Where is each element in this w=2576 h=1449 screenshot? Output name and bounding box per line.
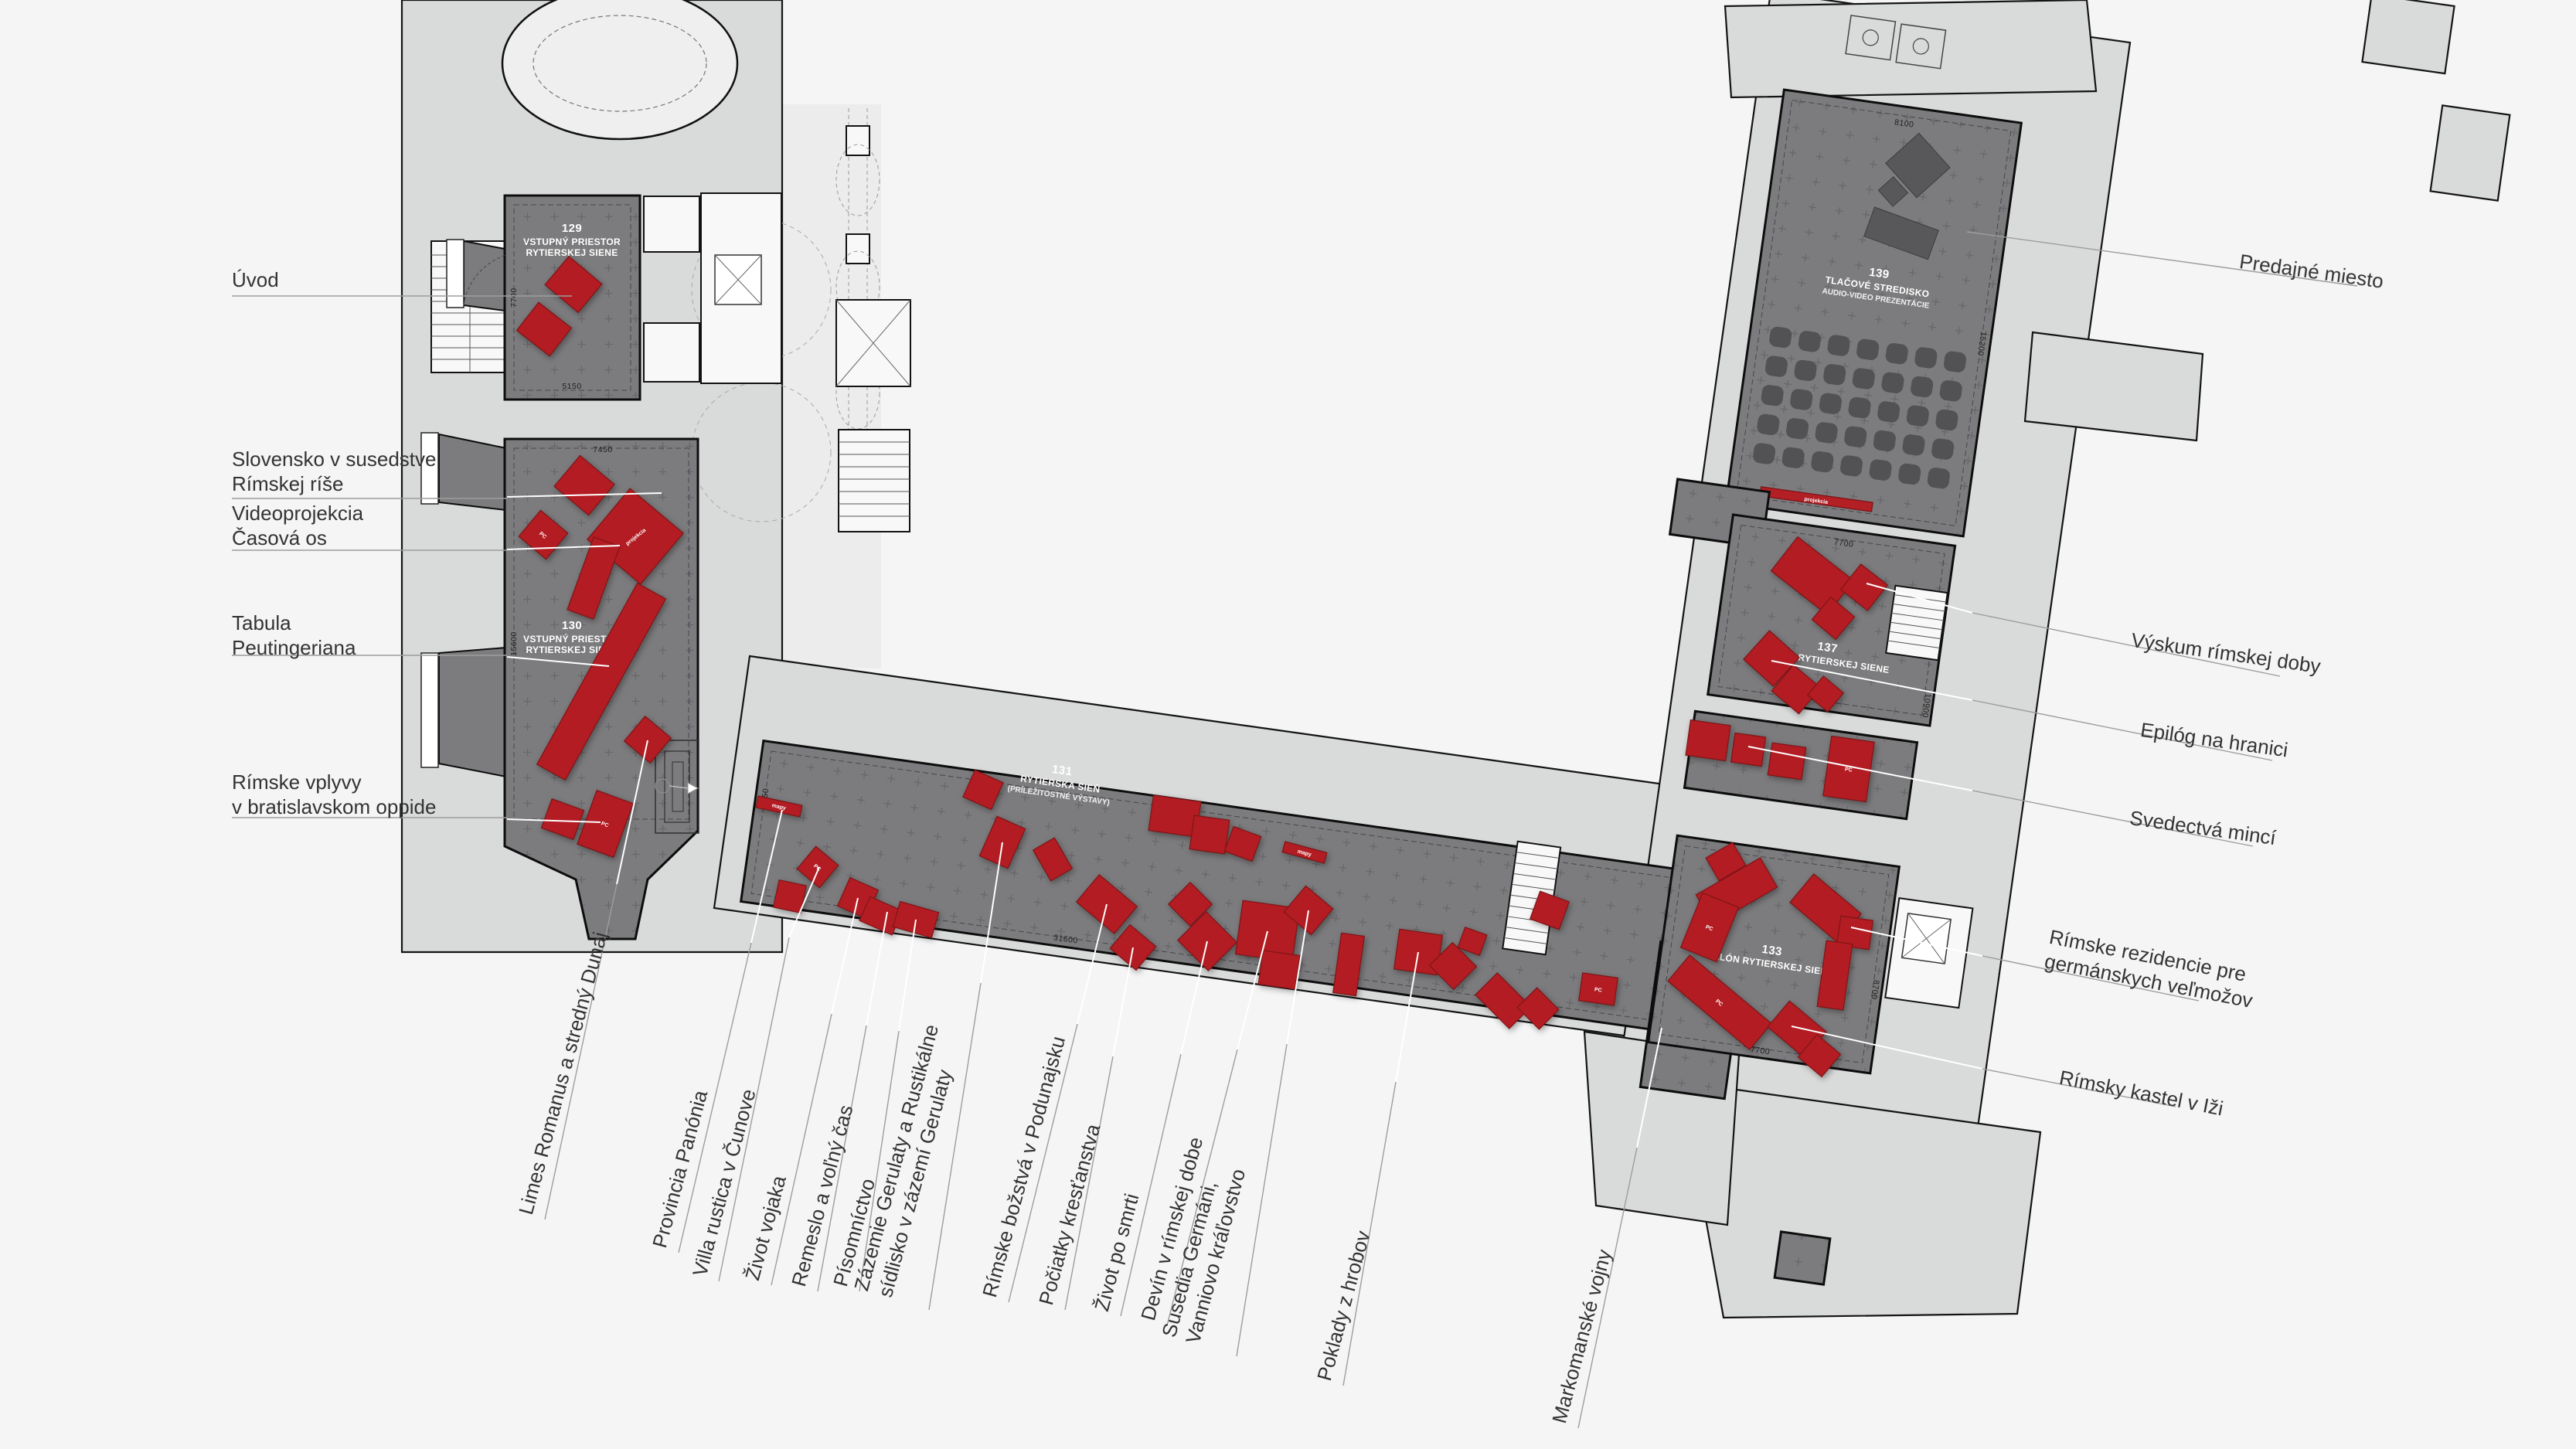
label-rimske-vplyvy: Rímske vplyvy v bratislavskom oppide bbox=[232, 770, 436, 819]
room-133-number: 133 bbox=[1761, 943, 1782, 958]
room-131-number: 131 bbox=[1051, 763, 1073, 778]
exhibit-label-pc: PC bbox=[1594, 987, 1602, 993]
wall-niche bbox=[464, 241, 505, 311]
exhibit-unit bbox=[1189, 815, 1230, 854]
room-137-number: 137 bbox=[1816, 640, 1838, 655]
lift-shaft bbox=[836, 300, 910, 386]
room-129-title: VSTUPNÝ PRIESTOR bbox=[523, 236, 621, 247]
exhibit-unit bbox=[1686, 720, 1730, 761]
vestibule-room bbox=[644, 323, 699, 382]
outbuilding bbox=[2362, 0, 2454, 73]
floor-plan-page: 129 VSTUPNÝ PRIESTOR RYTIERSKEJ SIENE 77… bbox=[0, 0, 2576, 1449]
vestibule-room bbox=[644, 196, 699, 252]
building-mass-top-right bbox=[1725, 0, 2096, 97]
leader-line bbox=[899, 920, 916, 1031]
window bbox=[447, 240, 464, 308]
stair-block-east-of-130 bbox=[839, 430, 910, 532]
dim-130-height: 15600 bbox=[509, 631, 519, 656]
label-videoprojekcia: Videoprojekcia Časová os bbox=[232, 501, 363, 550]
leader-line bbox=[1237, 1044, 1287, 1356]
room-139-number: 139 bbox=[1868, 266, 1890, 281]
oval-hall bbox=[502, 0, 737, 139]
label-slovensko-v-susedstve: Slovensko v susedstve Rímskej ríše bbox=[232, 447, 436, 496]
wall-niche bbox=[439, 648, 506, 777]
room-130-number: 130 bbox=[562, 619, 582, 632]
room-129-number: 129 bbox=[562, 222, 582, 235]
dim-129-height: 7700 bbox=[509, 287, 519, 307]
room-133: 133 SALÓN RYTIERSKEJ SIENE 7700 8700 bbox=[1649, 835, 1900, 1073]
building-mass-east-corridor bbox=[2025, 332, 2203, 440]
lift-block-east bbox=[1885, 898, 1972, 1008]
exhibit-unit bbox=[1258, 951, 1300, 989]
outbuilding bbox=[2431, 105, 2510, 200]
window bbox=[421, 653, 438, 767]
room-129-title2: RYTIERSKEJ SIENE bbox=[526, 247, 618, 258]
label-uvod: Úvod bbox=[232, 267, 279, 292]
label-tabula-peutingeriana: Tabula Peutingeriana bbox=[232, 611, 356, 660]
exhibit-unit bbox=[1768, 743, 1805, 780]
dim-129-width: 5150 bbox=[562, 382, 581, 391]
small-dark-room bbox=[1775, 1232, 1830, 1284]
exhibit-label-pc: PC bbox=[1844, 767, 1853, 773]
dim-130-width: 7450 bbox=[593, 445, 612, 454]
corridor-lift bbox=[701, 193, 781, 383]
